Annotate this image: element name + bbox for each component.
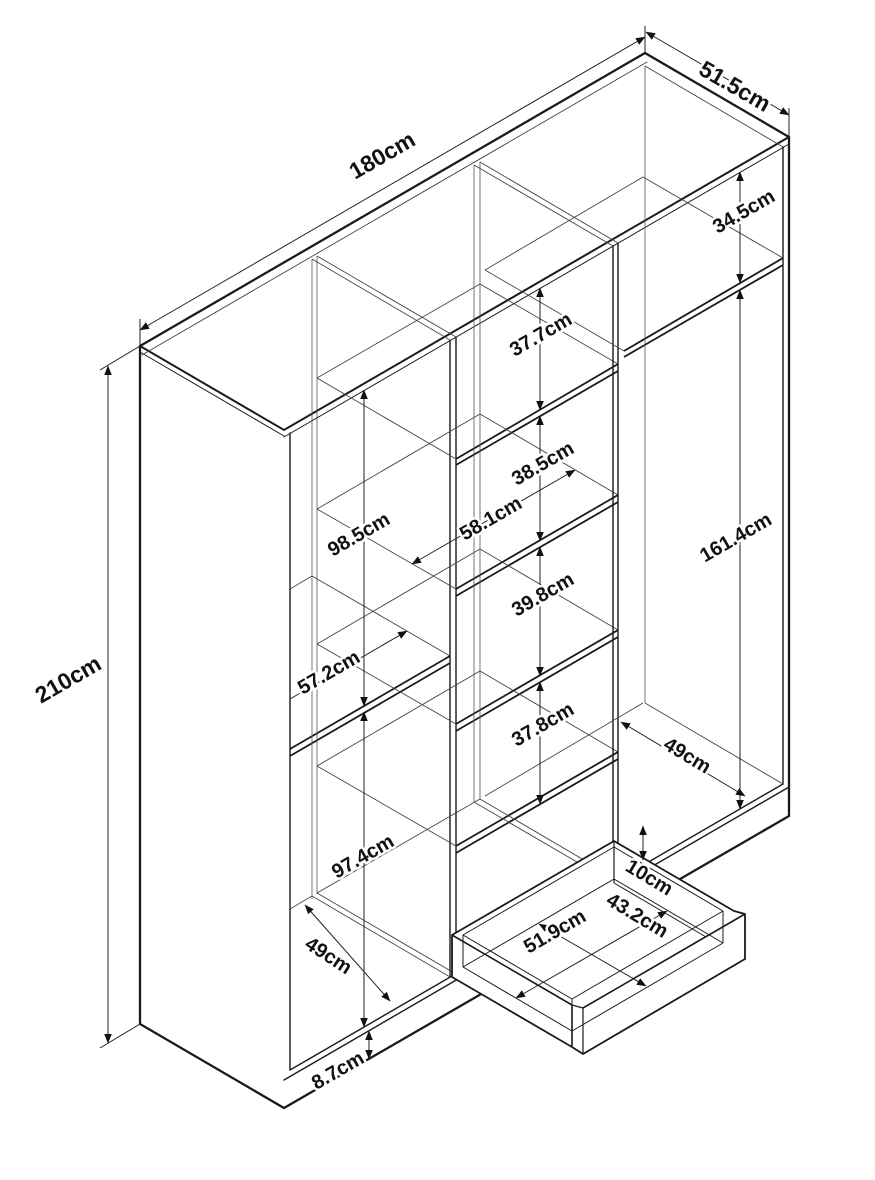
- wardrobe-dimension-diagram: 180cm 51.5cm 210cm 34.5cm 98.5cm 57.2cm …: [0, 0, 875, 1180]
- label-width-180: 180cm: [344, 126, 419, 184]
- diagram-canvas: 180cm 51.5cm 210cm 34.5cm 98.5cm 57.2cm …: [0, 0, 875, 1180]
- label-height-210: 210cm: [30, 650, 105, 708]
